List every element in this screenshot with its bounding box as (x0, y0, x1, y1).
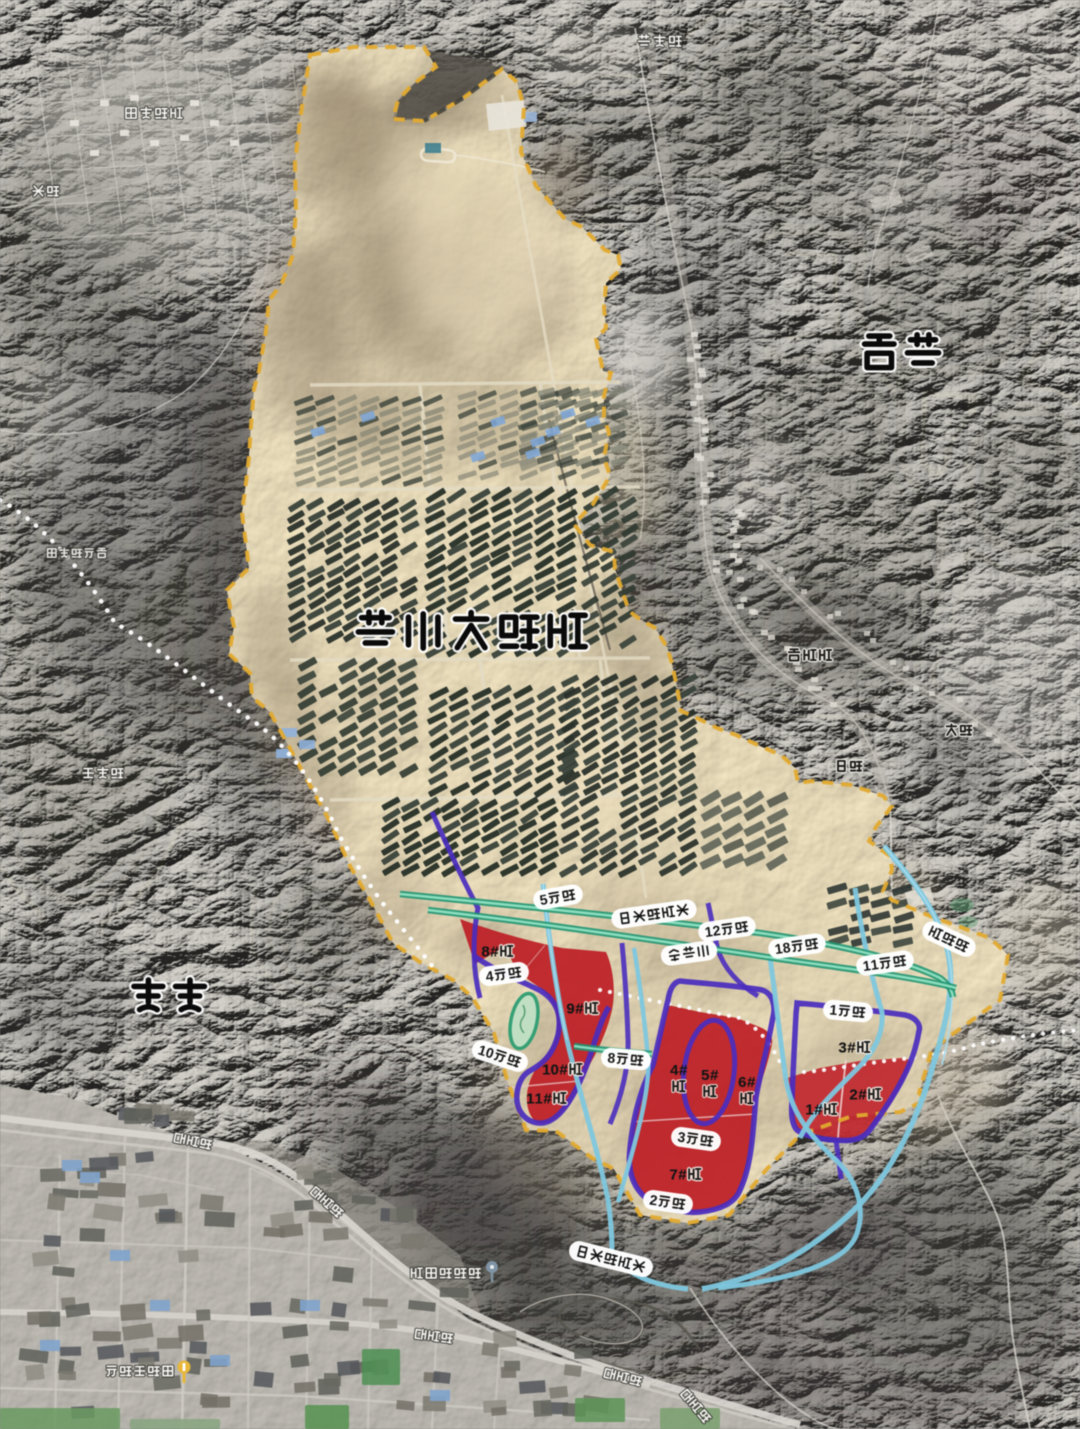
svg-text:#: # (678, 1166, 687, 1183)
svg-text:2: 2 (849, 1086, 857, 1103)
svg-text:0: 0 (551, 1061, 559, 1078)
svg-text:7: 7 (669, 1166, 677, 1183)
svg-text:#: # (559, 1061, 568, 1078)
svg-text:1: 1 (526, 1090, 534, 1107)
svg-text:1: 1 (542, 1061, 550, 1078)
svg-text:#: # (490, 943, 499, 960)
svg-text:3: 3 (838, 1039, 846, 1056)
svg-text:#: # (710, 1067, 719, 1084)
svg-text:1: 1 (805, 1101, 813, 1118)
svg-text:6: 6 (738, 1074, 746, 1091)
svg-text:5: 5 (701, 1067, 709, 1084)
svg-text:#: # (679, 1062, 688, 1079)
svg-text:#: # (814, 1101, 823, 1118)
svg-text:1: 1 (535, 1090, 543, 1107)
svg-text:#: # (575, 1000, 584, 1017)
svg-text:8: 8 (607, 1049, 616, 1066)
svg-text:9: 9 (566, 1000, 574, 1017)
svg-text:#: # (747, 1074, 756, 1091)
svg-text:8: 8 (481, 943, 489, 960)
svg-text:#: # (858, 1086, 867, 1103)
svg-text:#: # (847, 1039, 856, 1056)
svg-text:#: # (543, 1090, 552, 1107)
svg-text:4: 4 (670, 1062, 679, 1079)
svg-text:1: 1 (829, 1001, 838, 1018)
